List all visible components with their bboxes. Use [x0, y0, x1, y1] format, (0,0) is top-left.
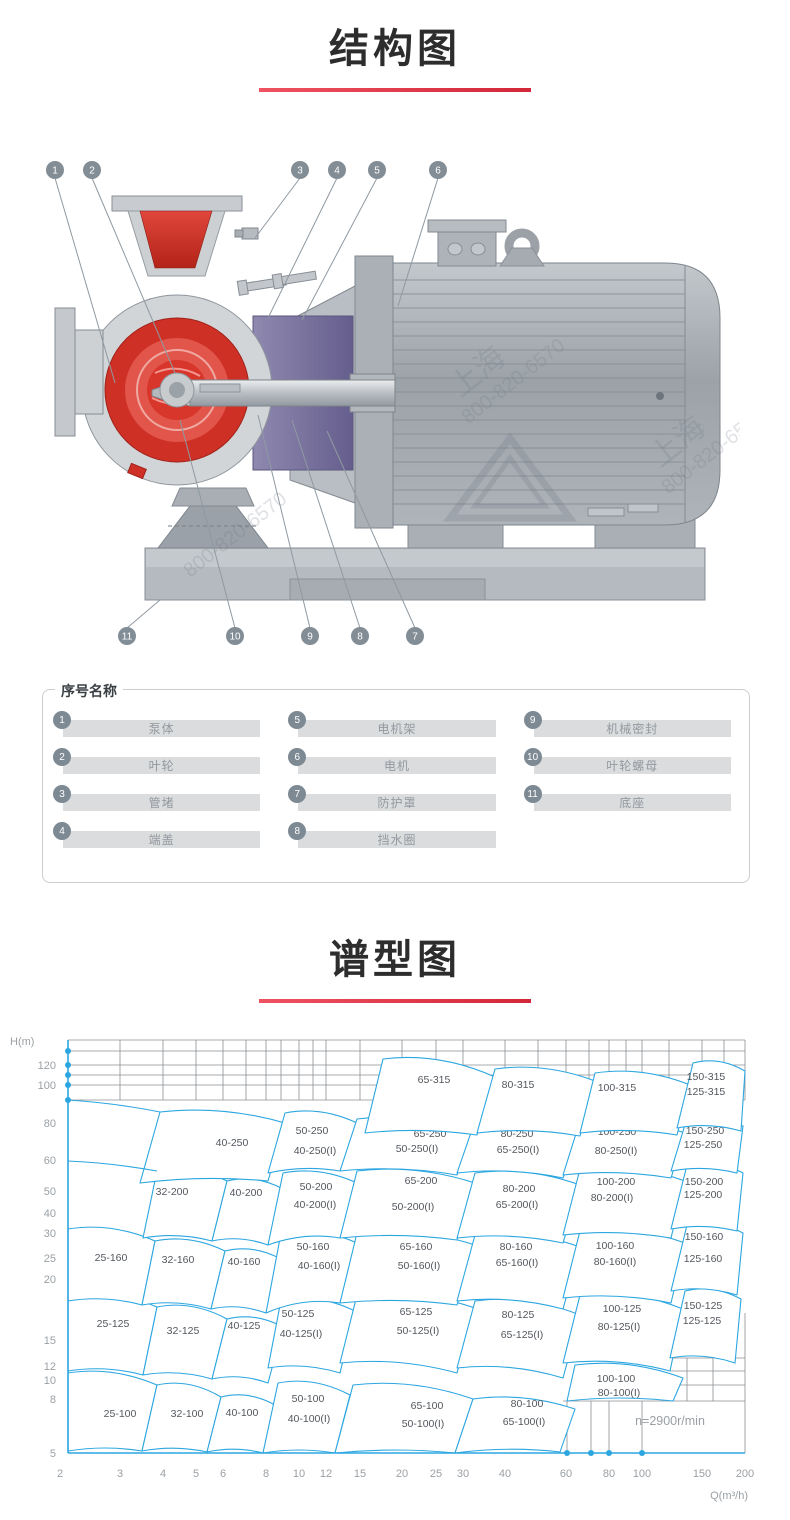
legend-item-3: 管堵3: [57, 788, 260, 810]
svg-text:40-200: 40-200: [230, 1187, 263, 1199]
svg-text:150-315: 150-315: [687, 1071, 726, 1083]
svg-text:40-200(I): 40-200(I): [294, 1199, 337, 1211]
svg-text:32-100: 32-100: [171, 1408, 204, 1420]
svg-text:80-160(I): 80-160(I): [594, 1256, 637, 1268]
svg-text:50-100: 50-100: [292, 1393, 325, 1405]
svg-text:80-315: 80-315: [502, 1079, 535, 1091]
legend-item-label: 电机: [298, 757, 495, 774]
svg-text:60: 60: [44, 1155, 56, 1167]
svg-text:150-160: 150-160: [685, 1231, 724, 1243]
svg-text:40: 40: [499, 1468, 511, 1480]
region-32-160: 32-160: [142, 1239, 225, 1309]
legend-title: 序号名称: [55, 681, 123, 701]
svg-text:10: 10: [293, 1468, 305, 1480]
svg-text:25: 25: [44, 1253, 56, 1265]
svg-text:6: 6: [220, 1468, 226, 1480]
legend-item-number: 9: [524, 711, 542, 729]
svg-text:40-125(I): 40-125(I): [280, 1328, 323, 1340]
svg-text:50: 50: [44, 1186, 56, 1198]
svg-text:65-160: 65-160: [400, 1241, 433, 1253]
svg-text:40-250: 40-250: [216, 1137, 249, 1149]
legend-item-number: 10: [524, 748, 542, 766]
svg-text:10: 10: [229, 632, 241, 643]
svg-text:8: 8: [357, 632, 363, 643]
svg-text:50-160(I): 50-160(I): [398, 1260, 441, 1272]
svg-text:125-250: 125-250: [684, 1139, 723, 1151]
svg-text:32-160: 32-160: [162, 1254, 195, 1266]
svg-text:40-125: 40-125: [228, 1320, 261, 1332]
svg-text:5: 5: [374, 166, 380, 177]
region-65-315: 65-315: [365, 1057, 495, 1135]
legend-item-number: 11: [524, 785, 542, 803]
svg-text:100-315: 100-315: [598, 1082, 637, 1094]
region-100-160: 100-16080-160(I): [563, 1229, 685, 1303]
svg-text:32-125: 32-125: [167, 1325, 200, 1337]
svg-text:80-200(I): 80-200(I): [591, 1192, 634, 1204]
legend-item-label: 防护罩: [298, 794, 495, 811]
svg-text:65-200: 65-200: [405, 1175, 438, 1187]
stud-bolts: [237, 268, 317, 295]
svg-text:80-100(I): 80-100(I): [598, 1387, 641, 1399]
svg-text:50-125(I): 50-125(I): [397, 1325, 440, 1337]
svg-text:80-100: 80-100: [511, 1398, 544, 1410]
svg-text:80-125: 80-125: [502, 1309, 535, 1321]
svg-text:100: 100: [633, 1468, 651, 1480]
svg-text:80: 80: [44, 1118, 56, 1130]
svg-text:10: 10: [44, 1375, 56, 1387]
svg-text:50-200: 50-200: [300, 1181, 333, 1193]
svg-text:65-250(I): 65-250(I): [497, 1144, 540, 1156]
region-65-100: 65-10050-100(I): [335, 1383, 473, 1453]
parts-legend: 序号名称 泵体1叶轮2管堵3端盖4电机架5电机6防护罩7挡水圈8机械密封9叶轮螺…: [42, 689, 750, 883]
legend-item-1: 泵体1: [57, 714, 260, 736]
svg-text:65-200(I): 65-200(I): [496, 1199, 539, 1211]
legend-item-label: 端盖: [63, 831, 260, 848]
legend-item-6: 电机6: [292, 751, 495, 773]
svg-text:40-160: 40-160: [228, 1256, 261, 1268]
svg-text:80-250(I): 80-250(I): [595, 1145, 638, 1157]
svg-text:30: 30: [44, 1228, 56, 1240]
speed-annotation: n=2900r/min: [635, 1414, 705, 1428]
svg-text:80-125(I): 80-125(I): [598, 1321, 641, 1333]
svg-text:50-160: 50-160: [297, 1241, 330, 1253]
svg-text:150: 150: [693, 1468, 711, 1480]
region-80-315: 80-315: [477, 1067, 595, 1136]
svg-text:125-315: 125-315: [687, 1086, 726, 1098]
region-150-200: 150-200125-200: [671, 1163, 743, 1231]
svg-text:150-200: 150-200: [685, 1176, 724, 1188]
region-80-125: 80-12565-125(I): [457, 1299, 580, 1378]
svg-text:15: 15: [354, 1468, 366, 1480]
svg-text:100-125: 100-125: [603, 1303, 642, 1315]
x-axis-label: Q(m³/h): [710, 1490, 748, 1502]
svg-text:6: 6: [435, 166, 441, 177]
svg-text:3: 3: [297, 166, 303, 177]
legend-item-label: 管堵: [63, 794, 260, 811]
svg-text:125-160: 125-160: [684, 1253, 723, 1265]
legend-item-number: 2: [53, 748, 71, 766]
svg-text:100: 100: [38, 1080, 56, 1092]
legend-item-number: 4: [53, 822, 71, 840]
svg-text:65-160(I): 65-160(I): [496, 1257, 539, 1269]
svg-text:8: 8: [263, 1468, 269, 1480]
callout-4: 4: [268, 161, 346, 318]
svg-text:100-160: 100-160: [596, 1240, 635, 1252]
region-65-200: 65-20050-200(I): [340, 1169, 475, 1240]
svg-text:65-100(I): 65-100(I): [503, 1416, 546, 1428]
legend-item-number: 1: [53, 711, 71, 729]
region-25-100: 25-100: [68, 1371, 157, 1451]
title-underline: [259, 88, 531, 92]
region-150-125: 150-125125-125: [670, 1289, 741, 1363]
region-80-160: 80-16065-160(I): [457, 1233, 580, 1309]
svg-text:65-125(I): 65-125(I): [501, 1329, 544, 1341]
legend-item-number: 3: [53, 785, 71, 803]
legend-item-label: 挡水圈: [298, 831, 495, 848]
svg-text:12: 12: [320, 1468, 332, 1480]
svg-text:40-100: 40-100: [226, 1407, 259, 1419]
svg-text:150-125: 150-125: [684, 1300, 723, 1312]
svg-text:120: 120: [38, 1060, 56, 1072]
svg-text:7: 7: [412, 632, 418, 643]
region-80-200: 80-20065-200(I): [457, 1171, 580, 1243]
svg-text:65-100: 65-100: [411, 1400, 444, 1412]
svg-text:20: 20: [396, 1468, 408, 1480]
svg-text:30: 30: [457, 1468, 469, 1480]
region-100-125: 100-12580-125(I): [563, 1293, 683, 1371]
region-65-160: 65-16050-160(I): [340, 1231, 475, 1305]
region-50-100: 50-10040-100(I): [263, 1381, 350, 1453]
region-150-315: 150-315125-315: [677, 1061, 745, 1131]
svg-text:125-125: 125-125: [683, 1315, 722, 1327]
svg-text:65-125: 65-125: [400, 1306, 433, 1318]
pipe-plug: [235, 228, 258, 239]
svg-text:40-100(I): 40-100(I): [288, 1413, 331, 1425]
region-25-125: 25-125: [68, 1293, 157, 1375]
spectrum-title: 谱型图: [0, 927, 790, 985]
svg-text:8: 8: [50, 1394, 56, 1406]
region-80-100: 80-10065-100(I): [455, 1397, 575, 1453]
svg-text:65-315: 65-315: [418, 1074, 451, 1086]
svg-text:125-200: 125-200: [684, 1189, 723, 1201]
structure-title: 结构图: [0, 16, 790, 74]
svg-text:2: 2: [89, 166, 95, 177]
y-axis-label: H(m): [10, 1036, 34, 1048]
svg-text:25: 25: [430, 1468, 442, 1480]
legend-item-7: 防护罩7: [292, 788, 495, 810]
svg-text:50-250: 50-250: [296, 1125, 329, 1137]
callout-11: 11: [118, 600, 160, 645]
legend-item-10: 叶轮螺母10: [528, 751, 731, 773]
svg-text:50-100(I): 50-100(I): [402, 1418, 445, 1430]
svg-text:12: 12: [44, 1361, 56, 1373]
svg-text:40-160(I): 40-160(I): [298, 1260, 341, 1272]
svg-text:25-160: 25-160: [95, 1252, 128, 1264]
svg-text:4: 4: [334, 166, 340, 177]
selection-chart: 25-10032-10040-10050-10040-100(I)65-1005…: [10, 1033, 780, 1511]
shaft-hub-center: [169, 382, 185, 398]
region-150-160: 150-160125-160: [671, 1223, 743, 1295]
svg-text:50-250(I): 50-250(I): [396, 1143, 439, 1155]
title-underline-2: [259, 999, 531, 1003]
callout-3: 3: [255, 161, 309, 238]
region-40-250: 40-250: [140, 1110, 285, 1183]
svg-text:80: 80: [603, 1468, 615, 1480]
legend-item-9: 机械密封9: [528, 714, 731, 736]
svg-text:4: 4: [160, 1468, 166, 1480]
lifting-eye: [500, 233, 544, 266]
pump-structure-diagram-wrap: 上海800-820-6570 上海800-820-6570 800-820-65…: [40, 158, 740, 653]
svg-text:40: 40: [44, 1208, 56, 1220]
motor-drain-dot: [656, 392, 664, 400]
svg-text:50-200(I): 50-200(I): [392, 1201, 435, 1213]
svg-text:32-200: 32-200: [156, 1186, 189, 1198]
legend-item-label: 电机架: [298, 720, 495, 737]
pump-structure-diagram: 上海800-820-6570 上海800-820-6570 800-820-65…: [40, 158, 740, 648]
structure-title-block: 结构图: [0, 0, 790, 92]
svg-text:25-125: 25-125: [97, 1318, 130, 1330]
legend-item-4: 端盖4: [57, 825, 260, 847]
svg-text:25-100: 25-100: [104, 1408, 137, 1420]
svg-text:20: 20: [44, 1274, 56, 1286]
svg-text:50-125: 50-125: [282, 1308, 315, 1320]
svg-text:40-250(I): 40-250(I): [294, 1145, 337, 1157]
legend-item-label: 叶轮: [63, 757, 260, 774]
legend-item-11: 底座11: [528, 788, 731, 810]
svg-text:100-200: 100-200: [597, 1176, 636, 1188]
svg-text:5: 5: [193, 1468, 199, 1480]
legend-item-8: 挡水圈8: [292, 825, 495, 847]
svg-text:3: 3: [117, 1468, 123, 1480]
svg-text:100-100: 100-100: [597, 1373, 636, 1385]
legend-column-1: 泵体1叶轮2管堵3端盖4: [43, 714, 278, 862]
legend-item-label: 底座: [534, 794, 731, 811]
svg-text:15: 15: [44, 1335, 56, 1347]
legend-item-2: 叶轮2: [57, 751, 260, 773]
chart-regions: 25-10032-10040-10050-10040-100(I)65-1005…: [68, 1057, 745, 1453]
svg-text:80-200: 80-200: [503, 1183, 536, 1195]
legend-column-3: 机械密封9叶轮螺母10底座11: [514, 714, 749, 862]
region-25-160: 25-160: [68, 1227, 155, 1305]
motor-terminal-box: [428, 220, 506, 266]
svg-text:80-160: 80-160: [500, 1241, 533, 1253]
legend-item-label: 机械密封: [534, 720, 731, 737]
legend-column-2: 电机架5电机6防护罩7挡水圈8: [278, 714, 513, 862]
legend-item-5: 电机架5: [292, 714, 495, 736]
legend-item-label: 泵体: [63, 720, 260, 737]
region-100-315: 100-315: [580, 1071, 690, 1135]
spectrum-title-block: 谱型图: [0, 927, 790, 1003]
svg-text:5: 5: [50, 1448, 56, 1460]
selection-chart-wrap: 25-10032-10040-10050-10040-100(I)65-1005…: [10, 1033, 790, 1516]
svg-text:200: 200: [736, 1468, 754, 1480]
svg-text:60: 60: [560, 1468, 572, 1480]
pump-impeller-volute: [105, 211, 249, 479]
svg-text:9: 9: [307, 632, 313, 643]
svg-text:11: 11: [122, 632, 133, 643]
legend-item-label: 叶轮螺母: [534, 757, 731, 774]
pump-base: [145, 548, 705, 600]
svg-text:2: 2: [57, 1468, 63, 1480]
svg-text:1: 1: [52, 166, 58, 177]
